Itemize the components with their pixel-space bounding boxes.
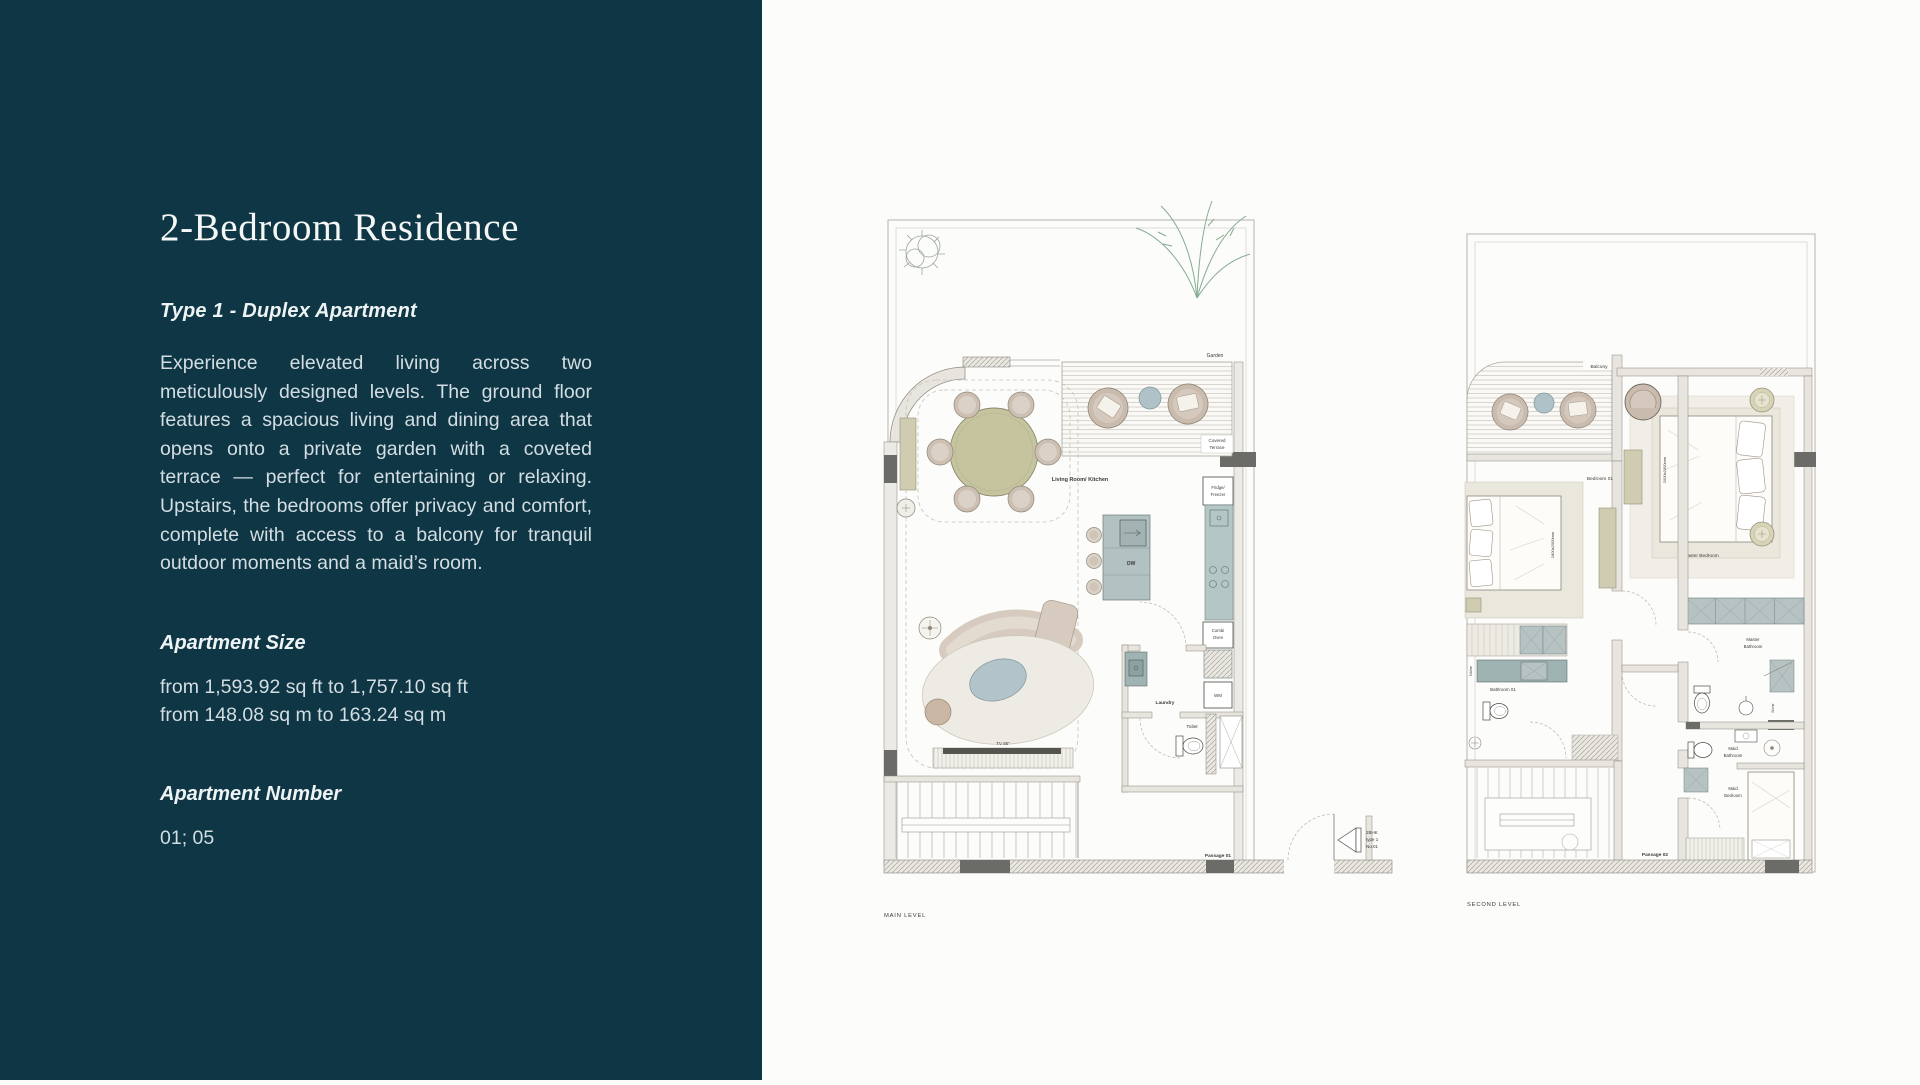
label-combi-oven: Oven	[1213, 635, 1224, 640]
label-balcony: Balcony	[1590, 364, 1608, 370]
side-table	[925, 699, 951, 725]
label-wm: WM	[1214, 693, 1222, 698]
label-covered-terrace: Covered	[1208, 438, 1226, 443]
label-maid-bedroom: Bedroom	[1724, 793, 1742, 798]
label-passage-01: Passage 01	[1205, 853, 1231, 859]
page-title: 2-Bedroom Residence	[160, 205, 762, 250]
size-imperial: from 1,593.92 sq ft to 1,757.10 sq ft	[160, 676, 468, 698]
apartment-number-heading: Apartment Number	[160, 783, 762, 806]
label-unit: 2BHK	[1366, 830, 1378, 835]
label-passage-02: Passage 02	[1642, 852, 1668, 858]
toilet-fixture	[1176, 736, 1203, 756]
label-maid-bathroom: Maid	[1728, 746, 1738, 751]
label-bathroom-01: Bathroom 01	[1490, 687, 1516, 692]
entrance-door-marker	[1338, 828, 1361, 852]
apartment-size-heading: Apartment Size	[160, 632, 762, 655]
label-fridge: Freezer	[1211, 492, 1226, 497]
label-garden: Garden	[1207, 353, 1224, 359]
master-bed	[1660, 416, 1772, 542]
label-master-bedroom: Master Bedroom	[1683, 553, 1718, 559]
label-niche: Niche	[1771, 703, 1775, 712]
label-unit: No.01	[1366, 844, 1379, 849]
sideboard	[900, 418, 916, 490]
label-master-bathroom: Master	[1746, 637, 1760, 642]
label-combi-oven: Combi	[1212, 628, 1224, 633]
caption-second-level: SECOND LEVEL	[1467, 902, 1521, 908]
info-sidebar: 2-Bedroom Residence Type 1 - Duplex Apar…	[0, 0, 762, 1080]
label-bedroom-01: Bedroom 01	[1587, 476, 1613, 482]
apartment-number-value: 01; 05	[160, 824, 762, 852]
label-master-bed-dim: 2000x2000mm	[1662, 456, 1667, 483]
type-subtitle: Type 1 - Duplex Apartment	[160, 300, 762, 323]
label-laundry: Laundry	[1156, 700, 1175, 706]
swivel-chair	[1625, 384, 1661, 420]
tree-icon	[899, 230, 945, 275]
label-fridge: Fridge/	[1211, 485, 1225, 490]
label-master-bathroom: Bathroom	[1744, 644, 1763, 649]
label-maid-bedroom: Maid	[1728, 786, 1738, 791]
size-metric: from 148.08 sq m to 163.24 sq m	[160, 704, 446, 726]
floor-plan-area: Garden Covered Terrace Living Room/ Kitc…	[762, 0, 1920, 1080]
label-dw: DW	[1127, 561, 1136, 567]
second-level-plan: Balcony 2000x2000mm Master Bedroom	[1465, 234, 1816, 908]
description-paragraph: Experience elevated living across two me…	[160, 349, 592, 578]
master-closet	[1686, 598, 1804, 624]
terrace-side-table	[1139, 387, 1161, 409]
label-niche: Niche	[1469, 666, 1473, 676]
floor-plans: Garden Covered Terrace Living Room/ Kitc…	[762, 0, 1920, 1080]
bedroom01-bed	[1467, 496, 1561, 590]
dining-table	[950, 408, 1038, 496]
label-tv: TV 85"	[996, 741, 1010, 746]
master-toilet	[1694, 686, 1710, 713]
label-toilet: Toilet	[1186, 724, 1198, 730]
label-maid-bathroom: Bathroom	[1724, 753, 1743, 758]
main-level-plan: Garden Covered Terrace Living Room/ Kitc…	[884, 201, 1392, 919]
label-bed01-dim: 1800x2000mm	[1550, 531, 1555, 558]
label-living-kitchen: Living Room/ Kitchen	[1052, 477, 1109, 483]
apartment-size-values: from 1,593.92 sq ft to 1,757.10 sq ft fr…	[160, 673, 762, 729]
maid-toilet	[1688, 742, 1712, 758]
kitchen-counter	[1205, 505, 1233, 620]
maid-bed	[1748, 772, 1794, 862]
label-unit: type 1	[1366, 837, 1379, 842]
label-covered-terrace: Terrace	[1209, 445, 1225, 450]
palm-icon	[1136, 201, 1250, 298]
bathroom01-toilet	[1483, 702, 1508, 720]
caption-main-level: MAIN LEVEL	[884, 913, 926, 919]
bedroom01-closet	[1467, 624, 1567, 656]
